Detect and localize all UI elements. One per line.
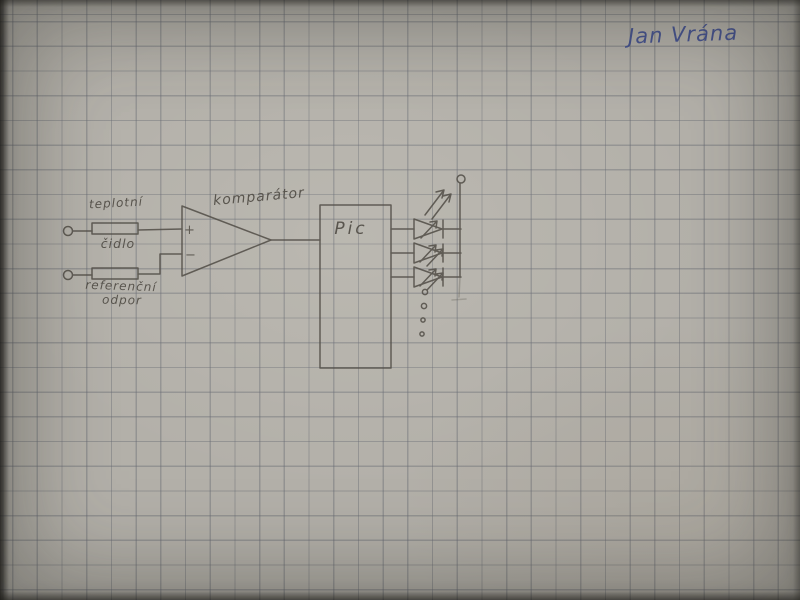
led-1-emission-arrows-icon bbox=[425, 190, 451, 219]
supply-rail-icon bbox=[452, 175, 466, 300]
input-terminal-top-icon bbox=[64, 227, 93, 236]
led-3-icon bbox=[414, 267, 461, 290]
comparator-triangle-icon: + − bbox=[182, 206, 320, 276]
label-reference-resistor-line2: odpor bbox=[96, 294, 148, 307]
label-reference-resistor-line1: referenční bbox=[82, 279, 160, 294]
comparator-plus-sign: + bbox=[184, 223, 195, 238]
more-outputs-ellipsis-icon bbox=[420, 289, 428, 336]
label-temperature-sensor-line2: čidlo bbox=[92, 237, 144, 250]
comparator-minus-sign: − bbox=[185, 248, 196, 263]
photo-of-schematic: + − bbox=[0, 0, 800, 600]
author-signature: Jan Vrána bbox=[628, 20, 769, 49]
led-2-icon bbox=[414, 243, 461, 266]
led-1-icon bbox=[414, 219, 461, 239]
label-mcu: Pic bbox=[329, 221, 373, 239]
resistor-reference-icon bbox=[92, 254, 182, 279]
resistor-temperature-sensor-icon bbox=[92, 223, 182, 234]
